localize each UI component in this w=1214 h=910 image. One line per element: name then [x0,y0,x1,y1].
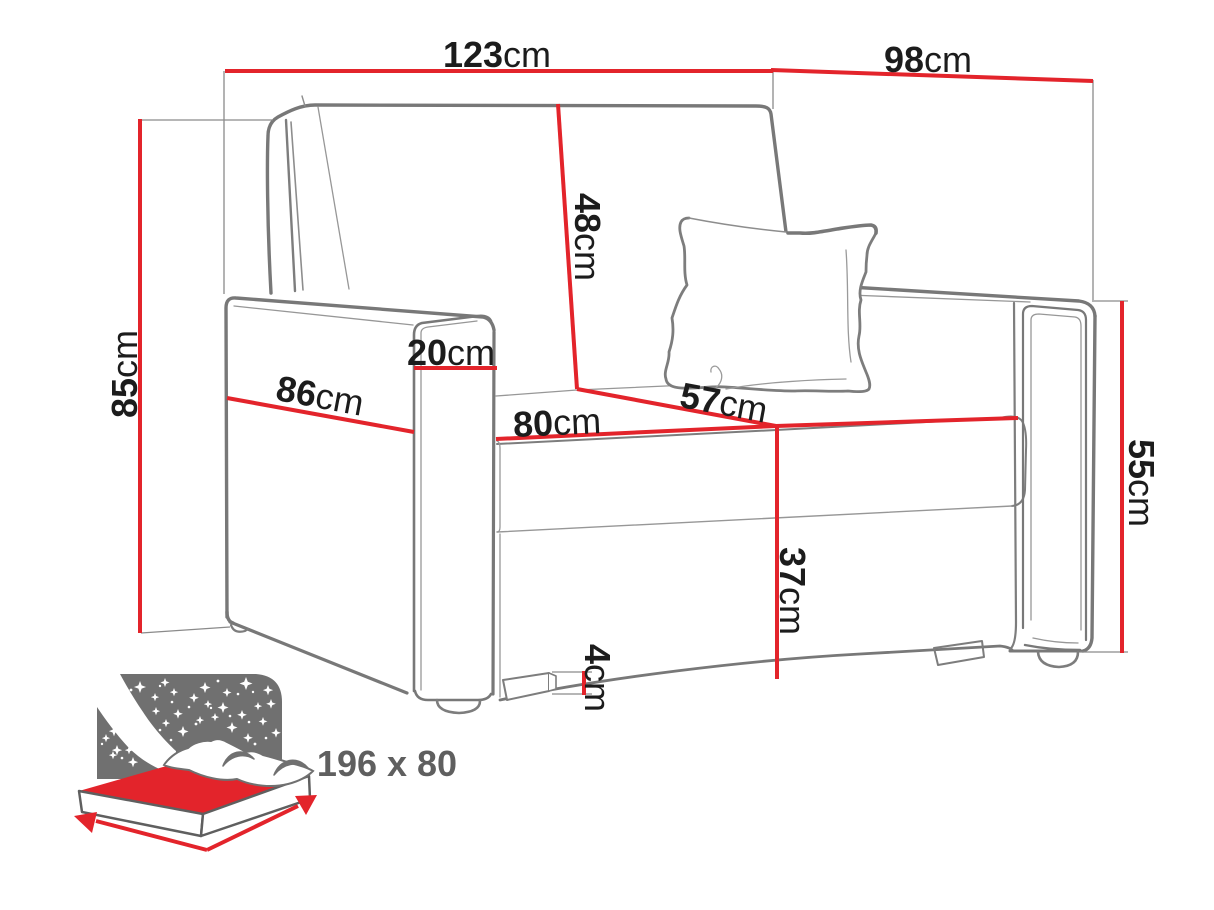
svg-text:20cm: 20cm [407,332,495,373]
svg-text:98cm: 98cm [884,39,972,80]
svg-text:80cm: 80cm [512,400,602,445]
svg-text:196 x 80: 196 x 80 [317,743,457,784]
svg-text:48cm: 48cm [567,193,608,281]
svg-text:55cm: 55cm [1121,439,1162,527]
svg-text:123cm: 123cm [443,34,551,75]
svg-text:4cm: 4cm [577,644,618,712]
svg-text:85cm: 85cm [104,330,145,418]
svg-text:37cm: 37cm [772,547,813,635]
